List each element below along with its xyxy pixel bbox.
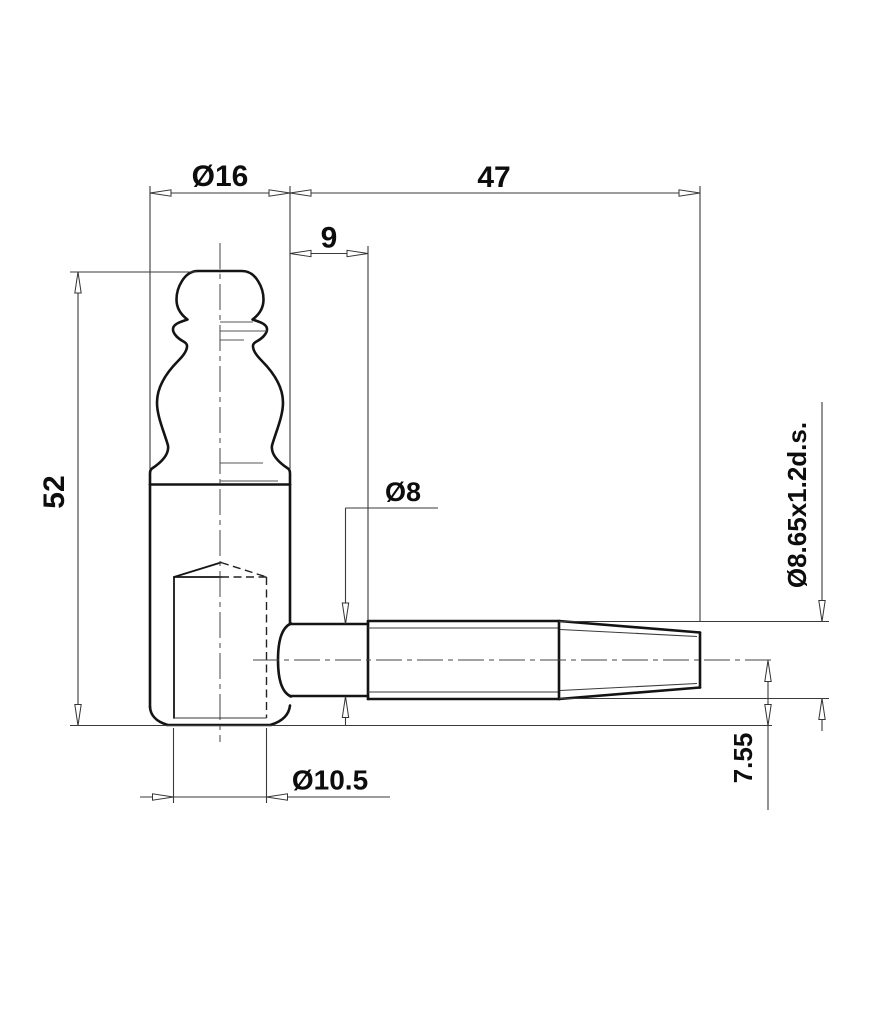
label-axis-offset: 7.55 <box>728 733 758 784</box>
ring-lines <box>220 322 278 481</box>
centerlines <box>220 243 772 742</box>
label-shank-diameter: Ø8 <box>385 477 421 507</box>
label-body-height: 52 <box>38 475 71 508</box>
label-screw-length: 47 <box>477 161 510 194</box>
dim-hole-diameter: Ø10.5 <box>140 728 390 803</box>
hinge-pin-drawing: Ø16 47 9 52 Ø8 <box>0 0 880 1024</box>
label-head-diameter: Ø16 <box>192 160 249 193</box>
technical-drawing-page: Ø16 47 9 52 Ø8 <box>0 0 880 1024</box>
label-shank-length: 9 <box>321 222 338 255</box>
label-hole-diameter: Ø10.5 <box>292 765 368 796</box>
dim-shank-diameter: Ø8 <box>342 477 438 726</box>
dim-shank-length: 9 <box>290 222 368 621</box>
label-thread-spec: Ø8.65x1.2d.s. <box>782 422 812 588</box>
dim-screw-length: 47 <box>290 161 700 621</box>
dim-axis-offset: 7.55 <box>728 661 771 811</box>
dim-thread-spec: Ø8.65x1.2d.s. <box>559 402 829 731</box>
